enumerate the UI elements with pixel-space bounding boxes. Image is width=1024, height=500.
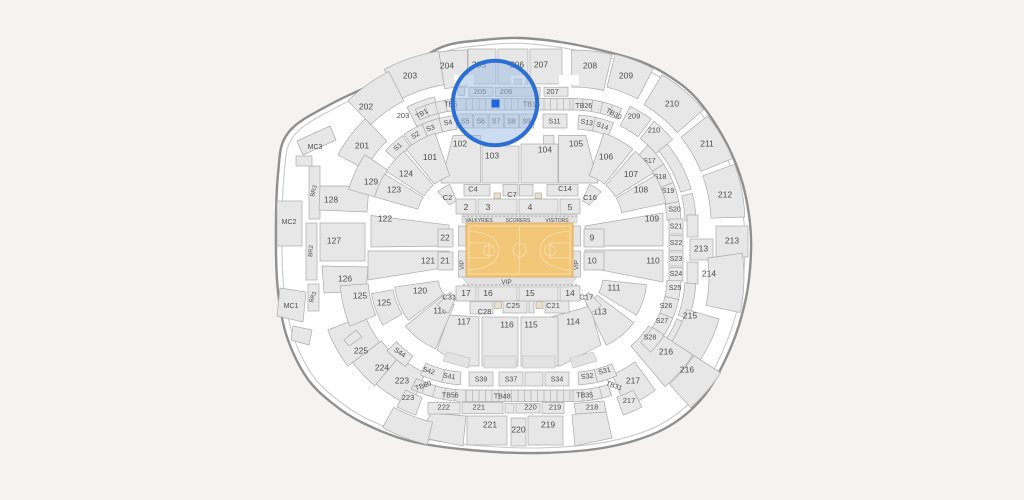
svg-text:207: 207 [534,59,548,69]
svg-text:22: 22 [440,232,450,242]
svg-text:5: 5 [568,202,573,212]
svg-text:125: 125 [377,297,391,307]
svg-text:217: 217 [623,396,636,405]
svg-text:9: 9 [590,232,595,242]
svg-text:VIP: VIP [460,260,466,270]
svg-text:117: 117 [457,316,471,326]
svg-text:213: 213 [694,243,708,253]
svg-text:SCORERS: SCORERS [506,218,531,224]
svg-text:TB56: TB56 [442,392,459,399]
svg-text:221: 221 [483,419,497,429]
svg-text:220: 220 [524,402,537,411]
svg-text:220: 220 [511,424,525,434]
svg-text:214: 214 [702,268,716,278]
svg-text:221: 221 [473,403,486,412]
svg-text:MC3: MC3 [308,144,323,151]
svg-text:218: 218 [586,402,599,411]
svg-text:209: 209 [619,70,633,80]
svg-text:202: 202 [359,101,373,111]
svg-text:126: 126 [338,273,352,283]
svg-text:210: 210 [648,125,661,134]
svg-text:21: 21 [440,255,450,265]
svg-text:203: 203 [397,111,410,120]
svg-text:223: 223 [395,375,409,385]
svg-text:213: 213 [725,235,739,245]
svg-text:115: 115 [524,319,538,329]
svg-text:106: 106 [599,151,613,161]
svg-text:211: 211 [700,138,714,148]
svg-text:216: 216 [659,346,673,356]
svg-text:VIP: VIP [575,260,581,270]
svg-text:S21: S21 [670,223,683,230]
svg-text:C14: C14 [558,184,572,193]
svg-text:219: 219 [541,419,555,429]
svg-text:C7: C7 [507,190,517,199]
svg-text:104: 104 [538,144,552,154]
svg-text:S20: S20 [668,207,681,214]
svg-text:C4: C4 [468,184,478,193]
svg-text:210: 210 [665,98,679,108]
svg-text:109: 109 [645,213,659,223]
svg-text:C28: C28 [478,307,492,316]
svg-text:103: 103 [485,150,499,160]
svg-text:S27: S27 [656,318,669,325]
svg-text:VISITORS: VISITORS [545,218,569,224]
svg-text:S28: S28 [644,334,657,341]
svg-text:222: 222 [438,403,451,412]
svg-text:124: 124 [399,168,413,178]
svg-text:VALKYRIES: VALKYRIES [465,218,493,224]
svg-text:16: 16 [483,288,493,298]
svg-text:208: 208 [583,60,597,70]
svg-text:224: 224 [375,362,389,372]
svg-text:108: 108 [634,184,648,194]
svg-text:S39: S39 [475,376,488,383]
svg-text:S4: S4 [443,119,453,127]
svg-text:S26: S26 [660,303,673,310]
svg-text:101: 101 [423,152,437,162]
svg-text:TB48: TB48 [494,393,511,400]
svg-text:C25: C25 [506,301,520,310]
svg-text:217: 217 [626,375,640,385]
svg-text:3: 3 [486,202,491,212]
svg-text:S24: S24 [670,271,683,278]
svg-text:215: 215 [683,310,697,320]
svg-text:C2: C2 [443,193,453,202]
svg-text:VIP: VIP [501,279,511,286]
svg-text:105: 105 [569,138,583,148]
svg-text:S22: S22 [670,240,683,247]
svg-text:S11: S11 [549,118,561,125]
svg-text:17: 17 [461,288,471,298]
svg-text:10: 10 [587,255,597,265]
svg-text:129: 129 [364,176,378,186]
svg-text:TB35: TB35 [576,392,593,399]
svg-text:2: 2 [464,202,469,212]
svg-text:S34: S34 [551,376,564,383]
svg-text:C21: C21 [546,301,560,310]
svg-text:121: 121 [421,255,435,265]
svg-text:14: 14 [565,288,575,298]
svg-text:C16: C16 [583,193,597,202]
svg-text:15: 15 [525,288,535,298]
svg-text:223: 223 [402,393,415,402]
svg-text:122: 122 [378,213,392,223]
svg-text:209: 209 [628,111,641,120]
svg-text:C31: C31 [442,293,456,302]
svg-text:212: 212 [718,189,732,199]
svg-text:114: 114 [566,316,580,326]
svg-text:116: 116 [500,319,514,329]
svg-text:4: 4 [528,202,533,212]
svg-text:102: 102 [453,138,467,148]
svg-text:TB26: TB26 [575,103,592,110]
svg-text:219: 219 [549,403,562,412]
svg-text:216: 216 [680,364,694,374]
svg-text:120: 120 [413,285,427,295]
svg-text:MC1: MC1 [284,303,299,310]
svg-text:125: 125 [353,290,367,300]
svg-text:C17: C17 [580,293,594,302]
svg-text:201: 201 [355,140,369,150]
svg-text:127: 127 [327,235,341,245]
svg-text:S25: S25 [669,285,682,292]
svg-text:207: 207 [546,87,559,96]
svg-text:111: 111 [608,282,621,292]
svg-text:110: 110 [646,255,660,265]
svg-text:BR2: BR2 [308,244,315,257]
svg-text:S37: S37 [505,376,518,383]
svg-text:128: 128 [324,194,338,204]
svg-text:203: 203 [403,70,417,80]
svg-text:204: 204 [440,60,454,70]
svg-text:MC2: MC2 [282,219,297,226]
svg-text:S23: S23 [670,256,683,263]
svg-text:123: 123 [387,184,401,194]
svg-text:107: 107 [624,169,638,179]
svg-text:225: 225 [354,345,368,355]
